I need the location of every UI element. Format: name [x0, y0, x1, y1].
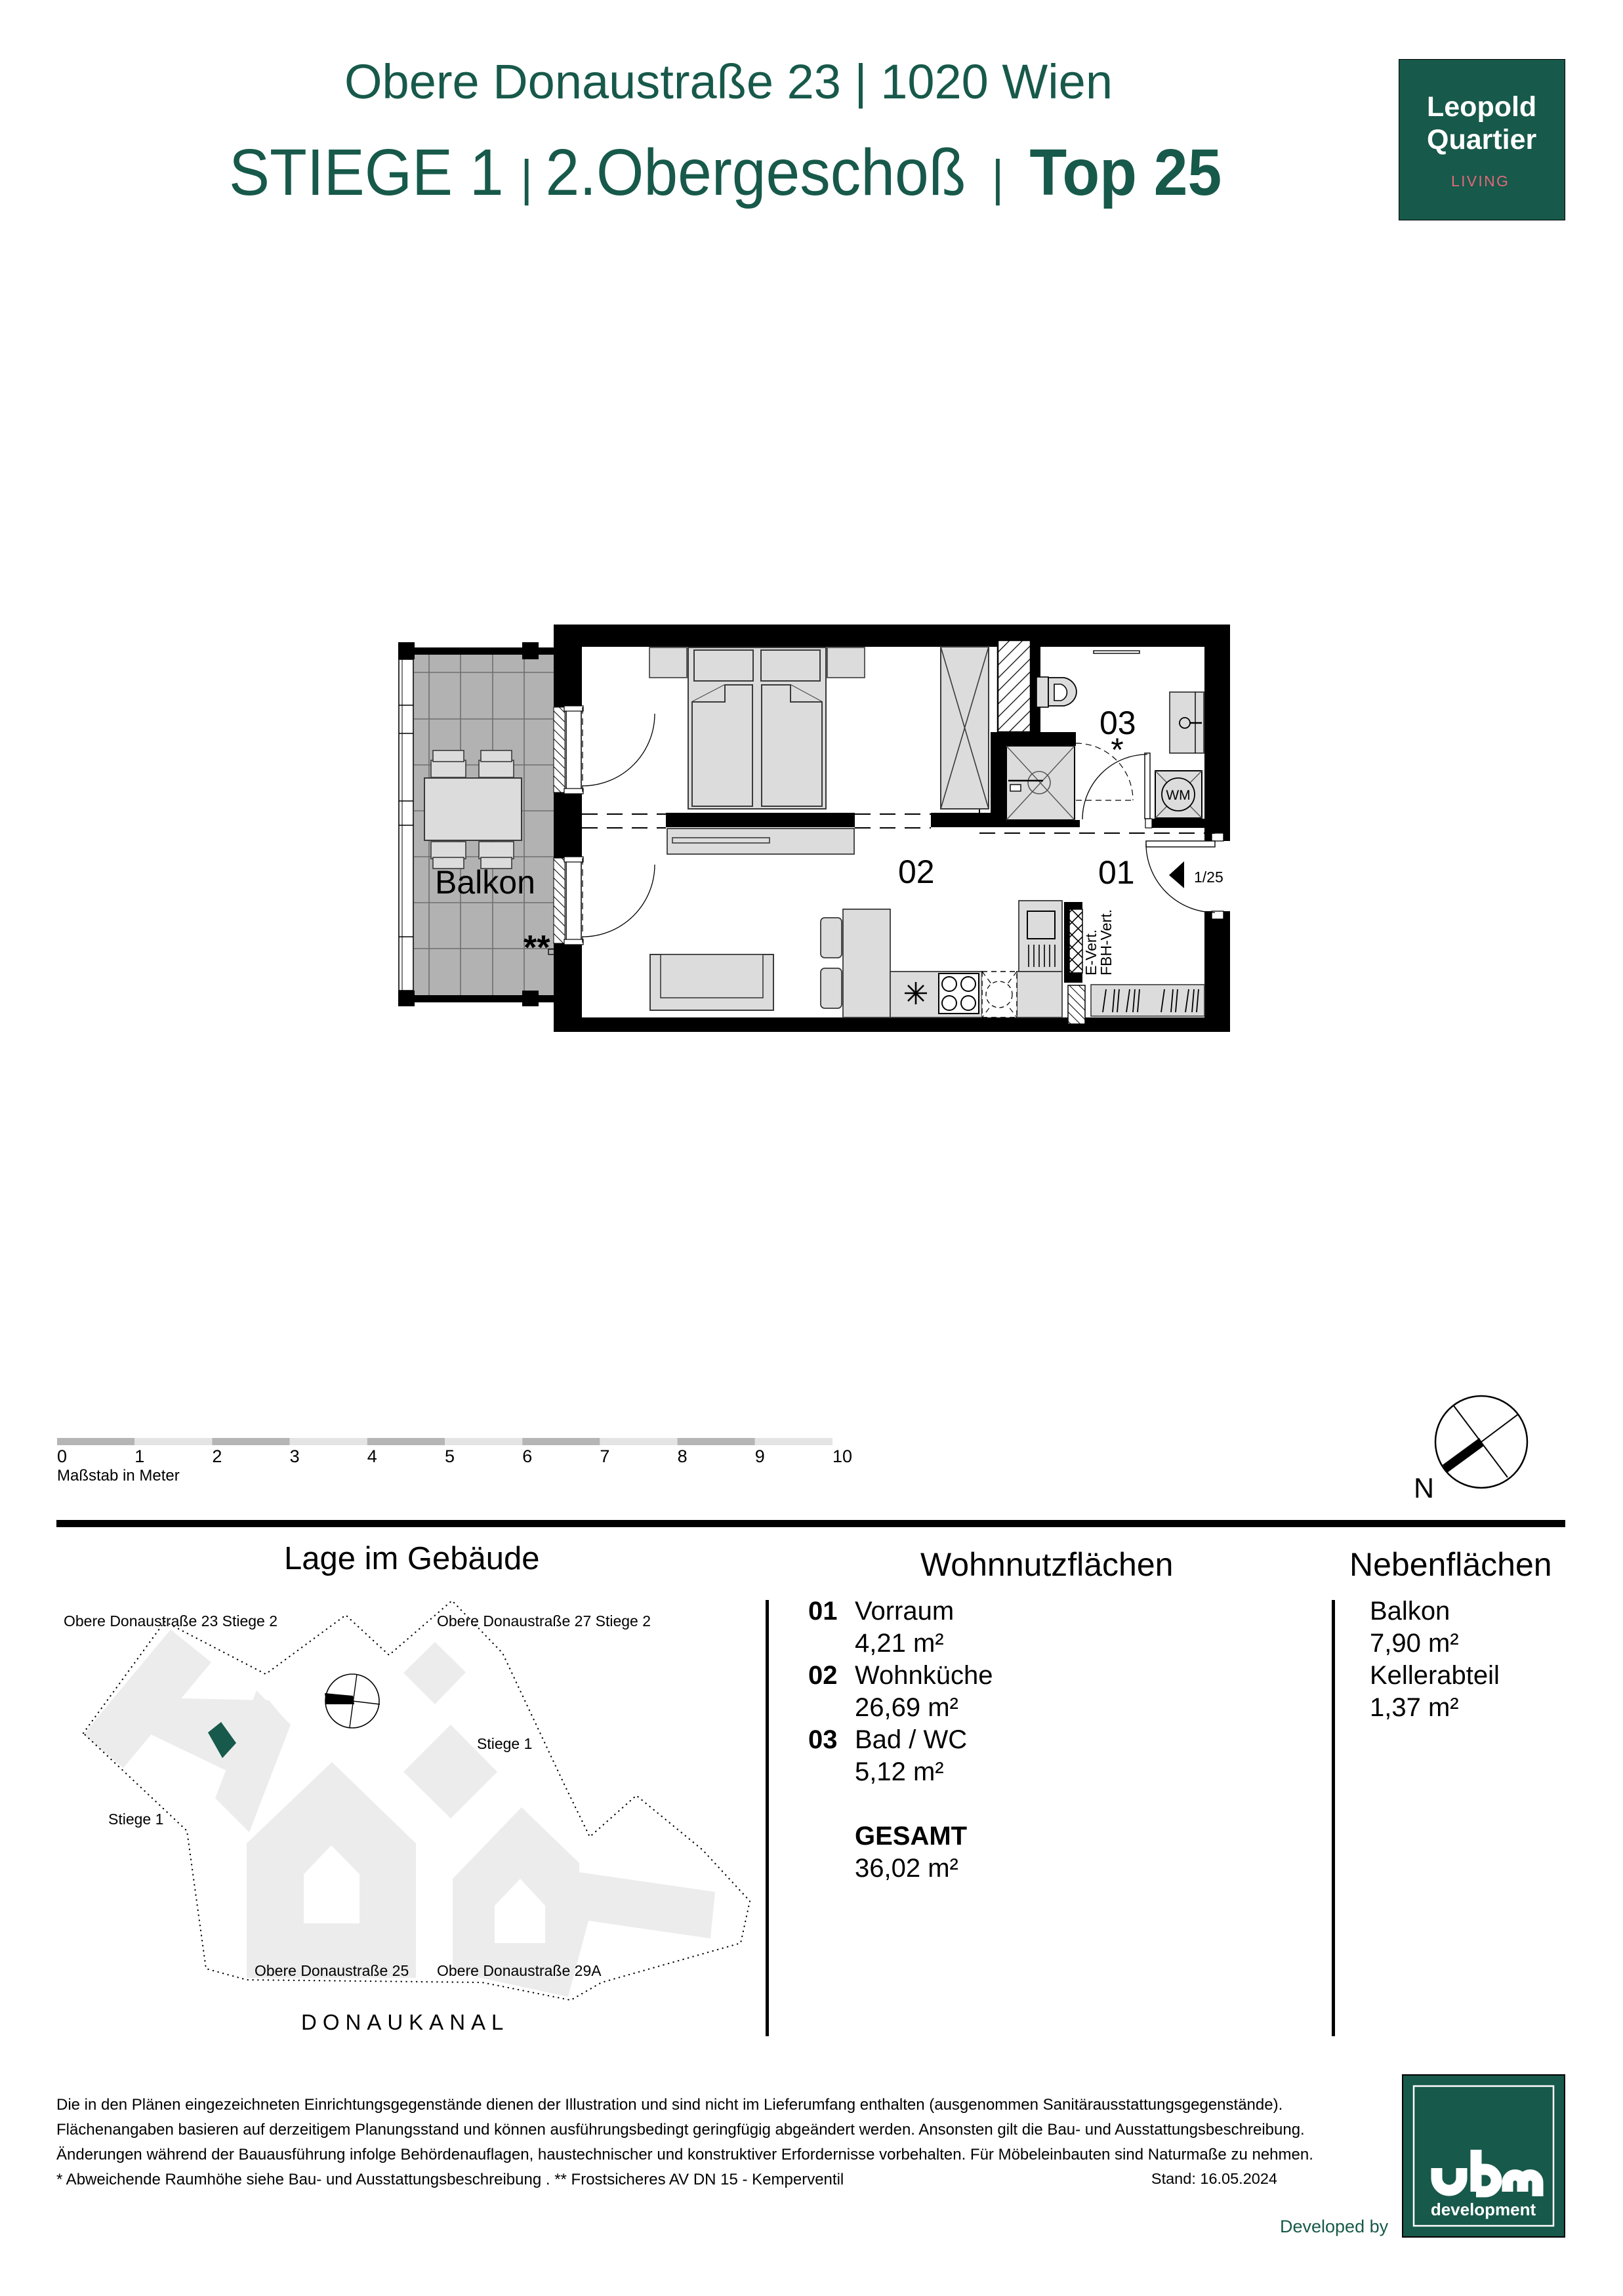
svg-text:*: *: [1111, 731, 1123, 768]
svg-text:**: **: [524, 929, 550, 967]
svg-text:Maßstab in Meter: Maßstab in Meter: [57, 1467, 180, 1485]
svg-text:N: N: [1414, 1473, 1434, 1504]
svg-text:02: 02: [898, 853, 935, 890]
svg-text:4: 4: [367, 1446, 377, 1466]
svg-text:3: 3: [290, 1446, 300, 1466]
svg-text:0: 0: [57, 1446, 67, 1466]
svg-text:7: 7: [600, 1446, 609, 1466]
svg-text:Balkon: Balkon: [435, 864, 535, 901]
svg-text:development: development: [1431, 2200, 1536, 2219]
svg-text:WM: WM: [1166, 788, 1190, 803]
svg-text:01: 01: [1098, 854, 1135, 891]
svg-text:DONAUKANAL: DONAUKANAL: [301, 2010, 509, 2034]
svg-text:1: 1: [134, 1446, 144, 1466]
svg-text:10: 10: [832, 1446, 852, 1466]
svg-text:1/25: 1/25: [1194, 869, 1223, 886]
svg-text:Obere Donaustraße 29A: Obere Donaustraße 29A: [437, 1962, 602, 1979]
svg-text:FBH-Vert.: FBH-Vert.: [1098, 909, 1115, 975]
svg-text:Obere Donaustraße 23 Stiege 2: Obere Donaustraße 23 Stiege 2: [64, 1612, 277, 1630]
svg-text:8: 8: [678, 1446, 688, 1466]
svg-text:Stiege 1: Stiege 1: [108, 1811, 163, 1828]
svg-text:5: 5: [445, 1446, 455, 1466]
svg-text:Stiege 1: Stiege 1: [477, 1735, 532, 1752]
svg-text:9: 9: [755, 1446, 765, 1466]
svg-text:Obere Donaustraße 27 Stiege 2: Obere Donaustraße 27 Stiege 2: [437, 1612, 651, 1630]
svg-text:6: 6: [522, 1446, 532, 1466]
svg-text:2: 2: [212, 1446, 222, 1466]
svg-text:Obere Donaustraße 25: Obere Donaustraße 25: [255, 1962, 409, 1979]
